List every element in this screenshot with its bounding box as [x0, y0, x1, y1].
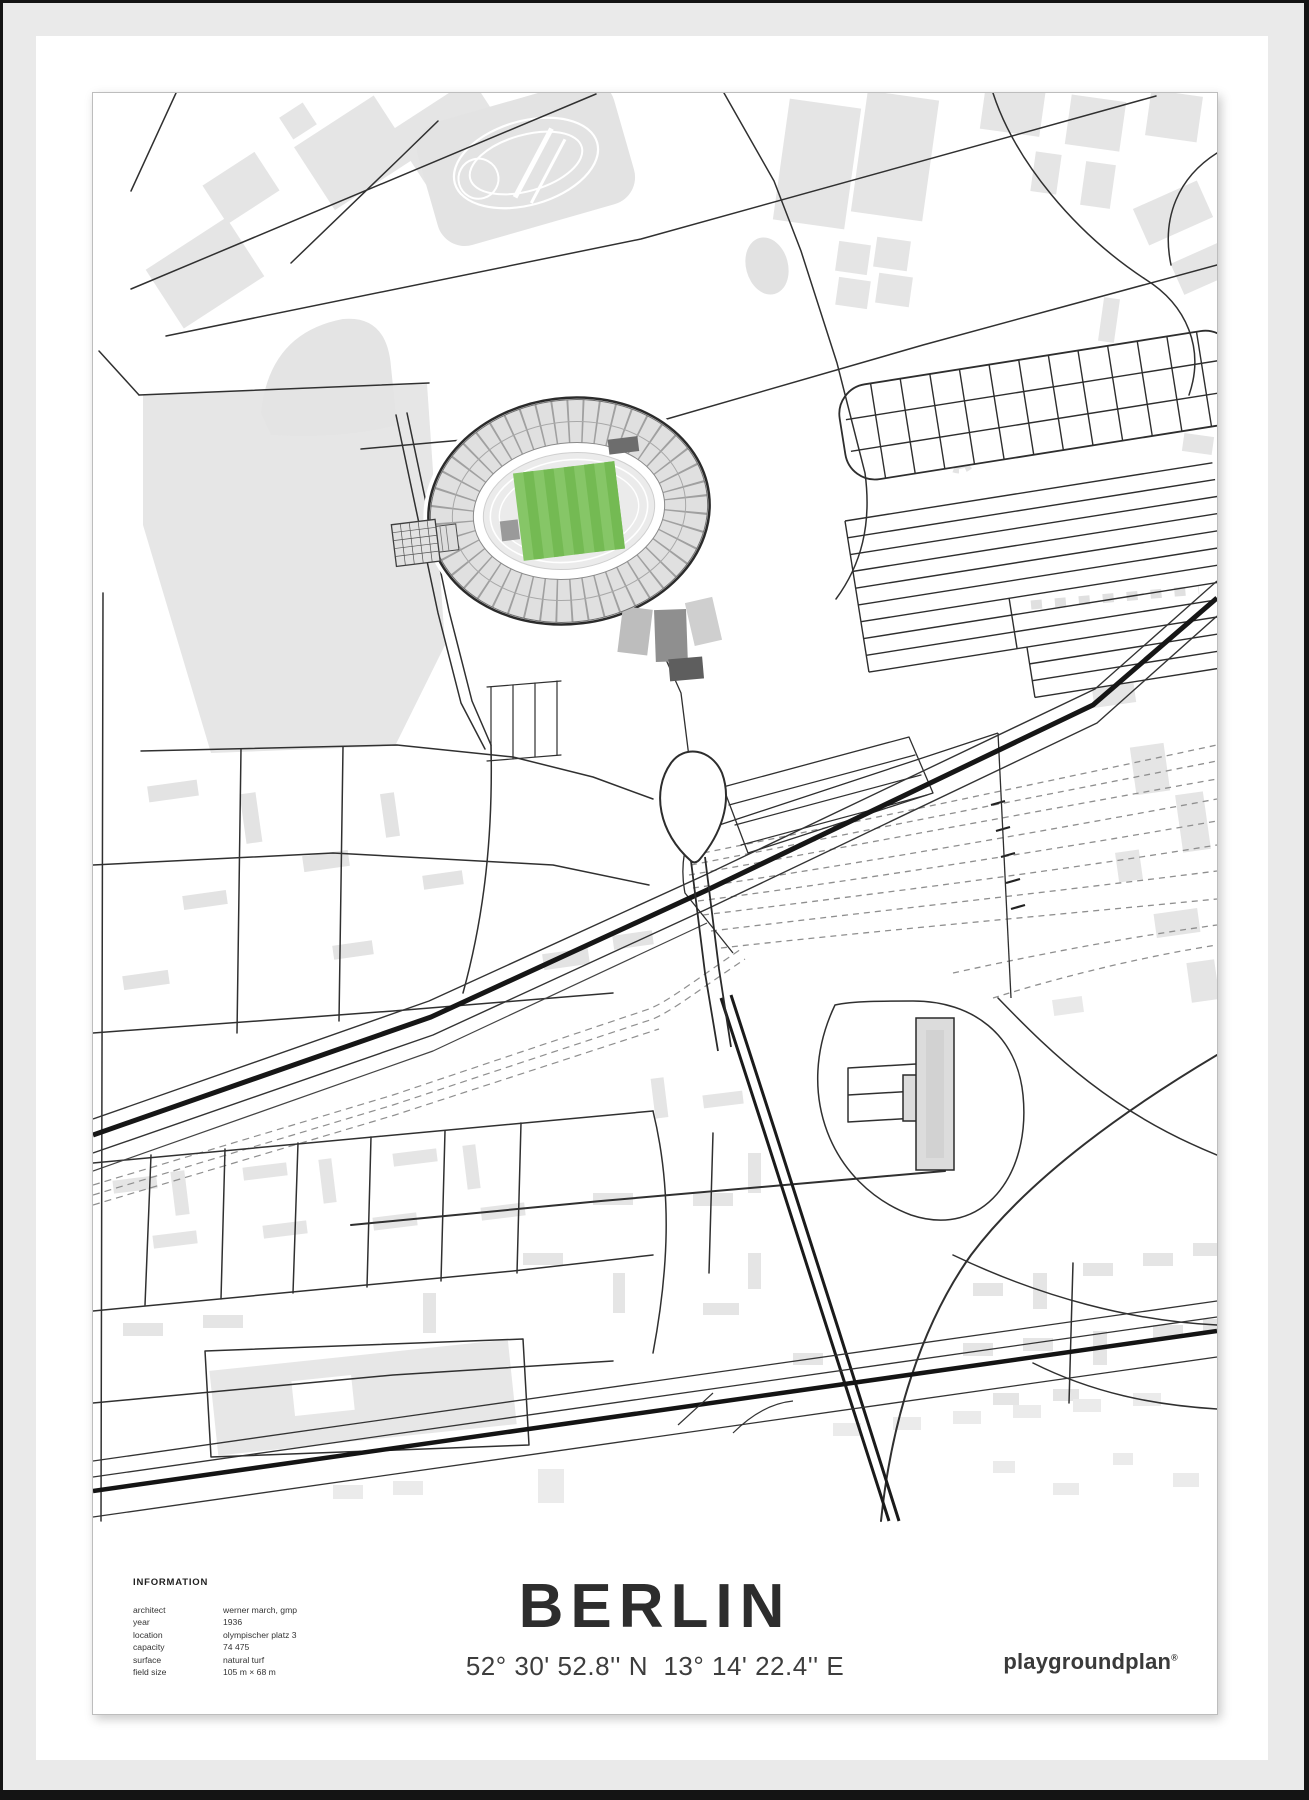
map-svg	[93, 93, 1217, 1523]
corbusier-slab	[903, 1018, 954, 1170]
roads-thin	[93, 93, 1217, 1521]
brand-text: playgroundplan	[1003, 1649, 1171, 1674]
map	[93, 93, 1217, 1523]
brand-logo: playgroundplan®	[1003, 1649, 1178, 1675]
balloon-loop	[660, 752, 726, 863]
railway-band	[93, 949, 745, 1205]
maifeld-field	[143, 384, 445, 753]
poster: INFORMATION architect werner march, gmp …	[92, 92, 1218, 1715]
pitch	[513, 461, 625, 561]
poster-title: BERLIN	[93, 1571, 1217, 1642]
waffle-grid	[835, 326, 1217, 483]
steep-double-road	[721, 995, 899, 1521]
registered-mark: ®	[1171, 1653, 1178, 1663]
